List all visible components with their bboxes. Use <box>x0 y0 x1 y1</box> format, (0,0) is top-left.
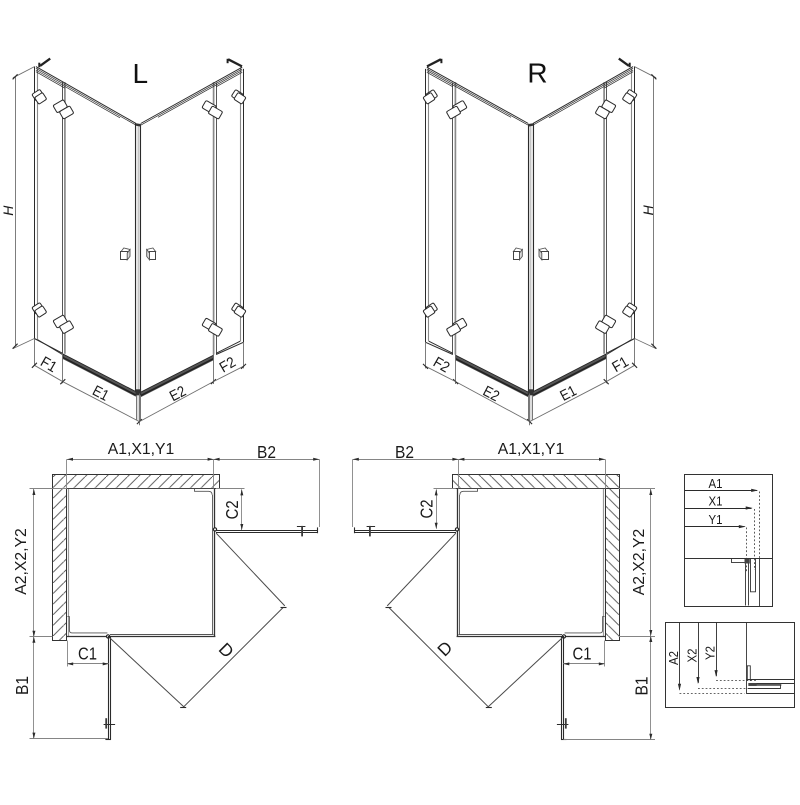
svg-text:R: R <box>527 58 547 89</box>
svg-text:A2,X2,Y2: A2,X2,Y2 <box>631 529 648 596</box>
svg-text:A2: A2 <box>667 651 681 665</box>
svg-text:A1,X1,Y1: A1,X1,Y1 <box>108 441 175 458</box>
svg-text:L: L <box>133 58 149 89</box>
svg-text:B1: B1 <box>12 676 32 695</box>
svg-text:A1: A1 <box>709 477 723 491</box>
svg-text:A2,X2,Y2: A2,X2,Y2 <box>13 528 30 595</box>
svg-text:B2: B2 <box>257 442 276 462</box>
svg-text:C2: C2 <box>417 500 437 519</box>
svg-text:X2: X2 <box>686 648 700 662</box>
svg-text:Y1: Y1 <box>709 513 723 527</box>
svg-text:X1: X1 <box>709 495 723 509</box>
svg-text:B2: B2 <box>395 442 414 462</box>
svg-text:Y2: Y2 <box>704 646 718 660</box>
svg-text:A1,X1,Y1: A1,X1,Y1 <box>498 441 565 458</box>
svg-text:H: H <box>0 205 16 216</box>
svg-text:C1: C1 <box>78 644 97 664</box>
svg-text:H: H <box>640 204 656 215</box>
svg-text:C1: C1 <box>573 644 592 664</box>
svg-text:B1: B1 <box>631 677 651 696</box>
svg-text:C2: C2 <box>222 500 242 519</box>
